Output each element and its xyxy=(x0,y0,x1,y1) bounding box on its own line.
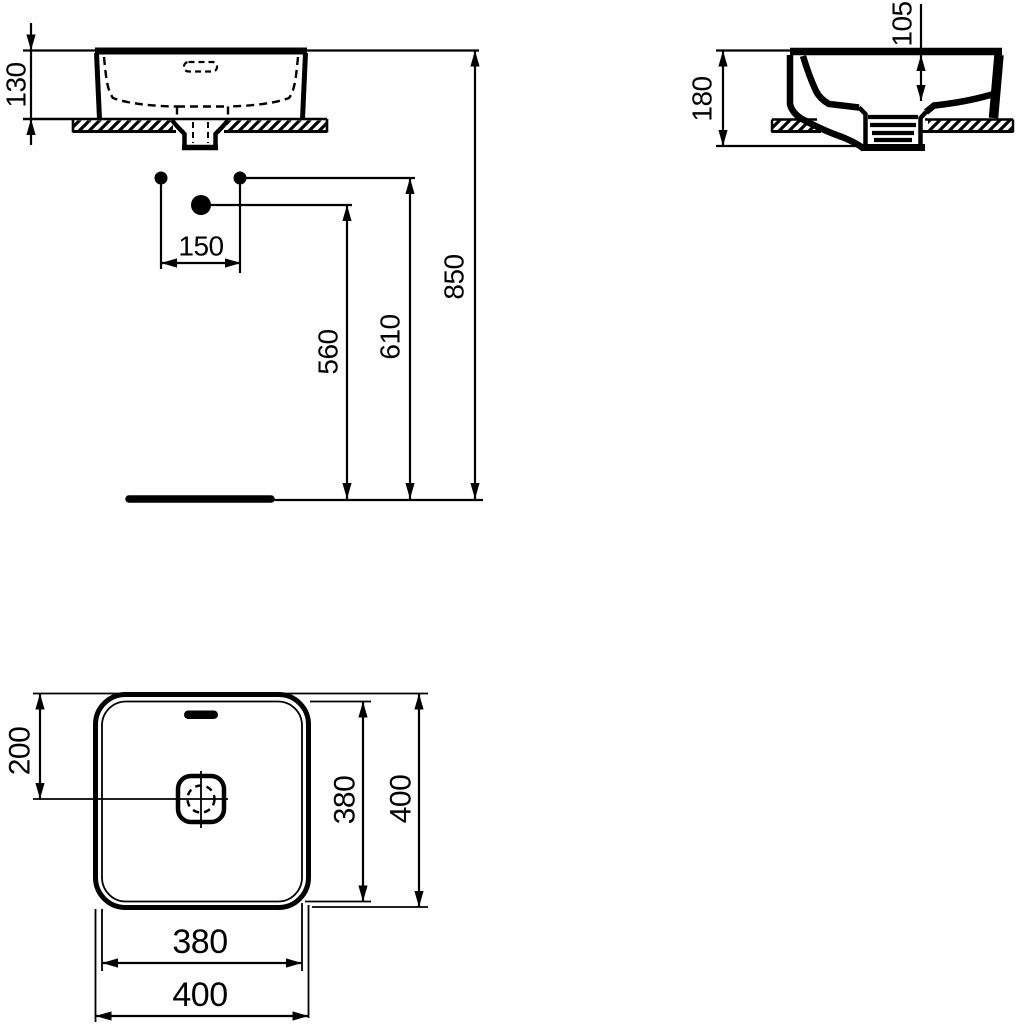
basin-right-wall xyxy=(303,53,306,119)
washbasin-technical-drawing: 130 150 560 610 850 180 105 xyxy=(0,0,1024,1024)
side-right-wall xyxy=(994,55,1000,118)
arrowhead xyxy=(718,51,727,67)
arrowhead xyxy=(405,483,414,499)
front-view-dimensions xyxy=(26,23,479,499)
arrowhead xyxy=(293,1011,309,1020)
dim-label-200: 200 xyxy=(4,727,37,776)
dim-label-150: 150 xyxy=(178,231,223,262)
arrowhead xyxy=(470,483,479,499)
dim-label-105: 105 xyxy=(887,1,918,46)
arrowhead xyxy=(470,51,479,67)
arrowhead xyxy=(358,886,367,902)
waste-hidden-lines xyxy=(193,122,208,143)
dim-label-610: 610 xyxy=(375,314,406,359)
tap-hole-dot-right xyxy=(234,172,247,185)
basin-left-wall xyxy=(97,53,100,119)
arrowhead xyxy=(35,783,44,799)
waste-stack-threads xyxy=(868,117,918,140)
side-inner-left-wall xyxy=(803,56,859,108)
arrowhead xyxy=(96,1011,112,1020)
counter-hatch-left xyxy=(74,121,173,131)
dim-label-130: 130 xyxy=(1,62,32,107)
arrowhead xyxy=(414,694,423,710)
plan-view xyxy=(33,694,428,1023)
arrowhead xyxy=(718,130,727,146)
arrowhead xyxy=(405,178,414,194)
arrowhead xyxy=(342,205,351,221)
arrowhead xyxy=(342,483,351,499)
floor-line xyxy=(129,499,483,500)
tap-hole-dot-left xyxy=(155,172,168,185)
arrowhead xyxy=(286,958,302,967)
arrowhead xyxy=(26,35,35,51)
arrowhead xyxy=(225,258,241,267)
counter-hatch-right xyxy=(227,121,326,131)
arrowhead xyxy=(102,958,118,967)
arrowhead xyxy=(358,702,367,718)
arrowhead xyxy=(916,85,925,101)
drain-position-dot xyxy=(191,195,211,215)
bowl-hidden-contour xyxy=(104,57,298,118)
side-counter-hatch-right xyxy=(928,121,1013,131)
dim-label-400-right: 400 xyxy=(385,775,418,824)
dim-label-400-bottom: 400 xyxy=(172,976,227,1014)
dim-label-380-bottom: 380 xyxy=(172,923,227,961)
arrowhead xyxy=(26,119,35,135)
dim-label-180: 180 xyxy=(687,76,718,121)
arrowhead xyxy=(916,55,925,71)
dim-label-380-right: 380 xyxy=(329,776,362,825)
drawing-sheet: 130 150 560 610 850 180 105 xyxy=(0,0,1024,1024)
arrowhead xyxy=(414,891,423,907)
front-view xyxy=(23,51,479,148)
arrowhead xyxy=(161,258,177,267)
side-bowl-bottom xyxy=(926,93,997,112)
dim-label-850: 850 xyxy=(439,254,470,299)
plan-overflow-slot xyxy=(184,711,218,720)
side-view xyxy=(716,4,1013,149)
overflow-hidden-outline xyxy=(184,62,217,72)
arrowhead xyxy=(35,694,44,710)
waste-funnel xyxy=(172,120,228,146)
plan-outer-outline xyxy=(96,695,309,908)
dim-label-560: 560 xyxy=(313,329,344,374)
